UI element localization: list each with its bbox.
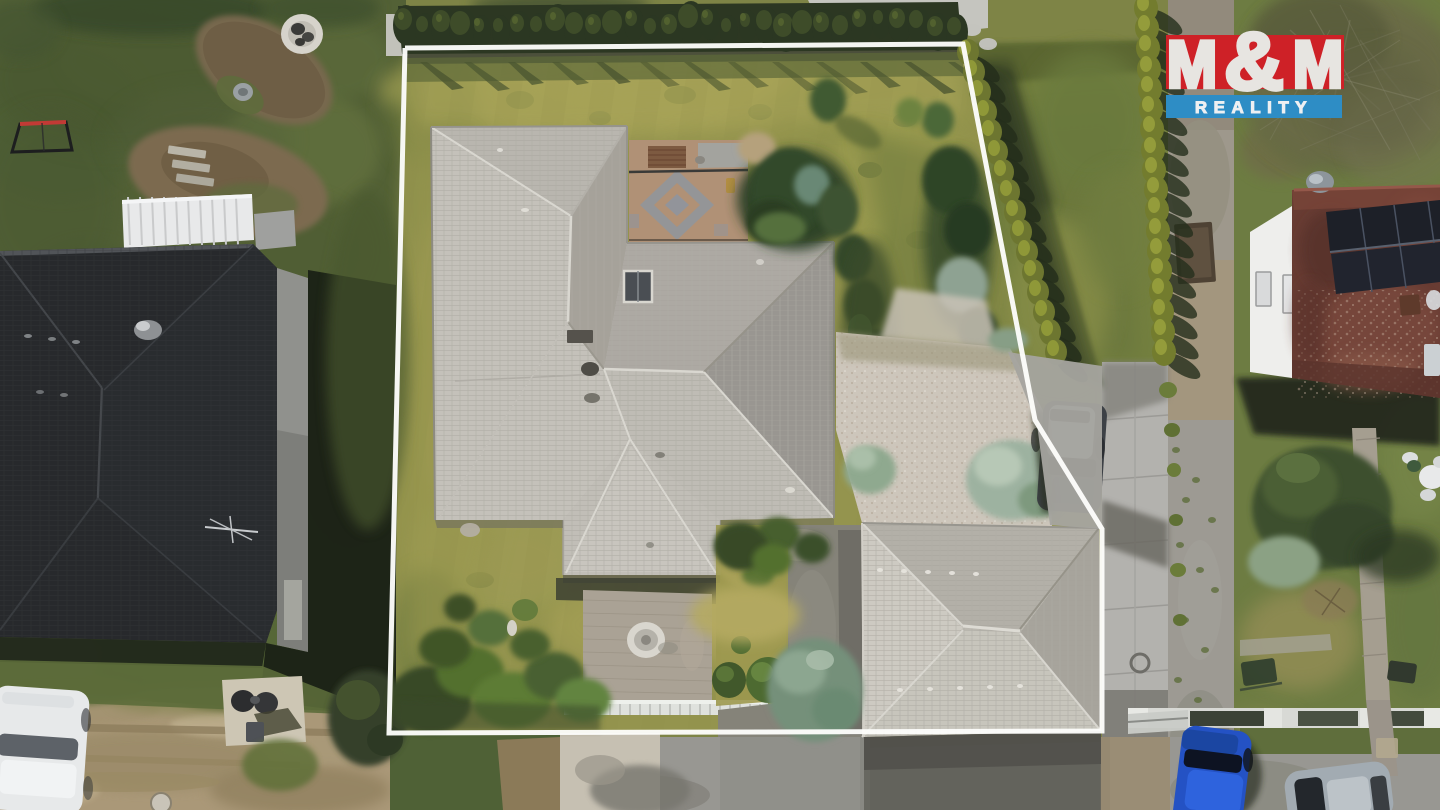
svg-text:&: & [1224,16,1284,107]
svg-text:M: M [1167,27,1217,101]
svg-text:REALITY: REALITY [1195,98,1313,117]
svg-text:M: M [1293,27,1343,101]
